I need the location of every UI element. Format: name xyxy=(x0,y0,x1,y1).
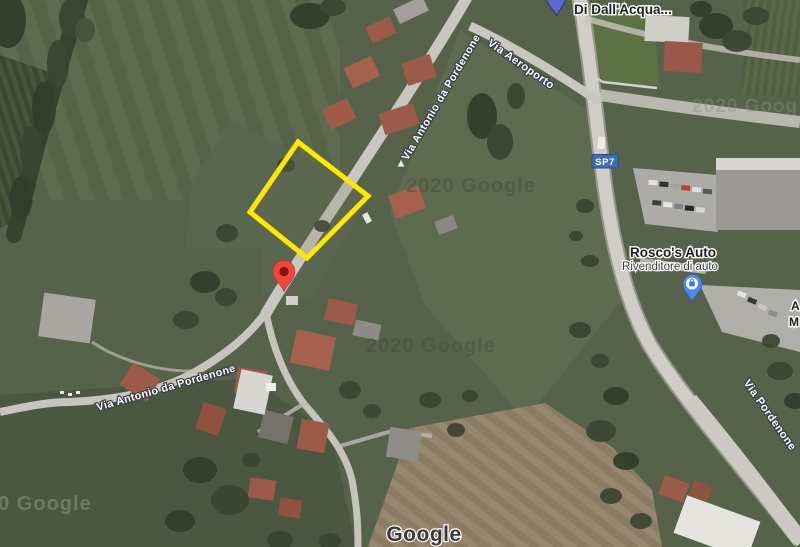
svg-text:M: M xyxy=(789,315,799,329)
map-canvas[interactable]: 2020 Google 2020 Google 20 Google 2020 G… xyxy=(0,0,800,547)
route-badge-text: SP7 xyxy=(595,157,614,168)
watermark-text-partial: 2020 Goog xyxy=(692,96,798,117)
watermark-text: 2020 Google xyxy=(406,175,536,197)
watermark-text: 2020 Google xyxy=(366,335,496,357)
google-logo[interactable]: Google xyxy=(386,523,461,546)
svg-text:A: A xyxy=(791,299,800,313)
terrain-fields xyxy=(0,0,800,547)
poi-label-roscos-auto[interactable]: Rosco's Auto xyxy=(630,245,716,260)
route-badge-sp7: SP7 xyxy=(592,155,618,169)
poi-sublabel-roscos-auto: Rivenditore di auto xyxy=(622,261,718,273)
watermark-text-partial: 20 Google xyxy=(0,493,92,515)
poi-label-di-dallacqua[interactable]: Di Dall'Acqua... xyxy=(574,2,672,17)
